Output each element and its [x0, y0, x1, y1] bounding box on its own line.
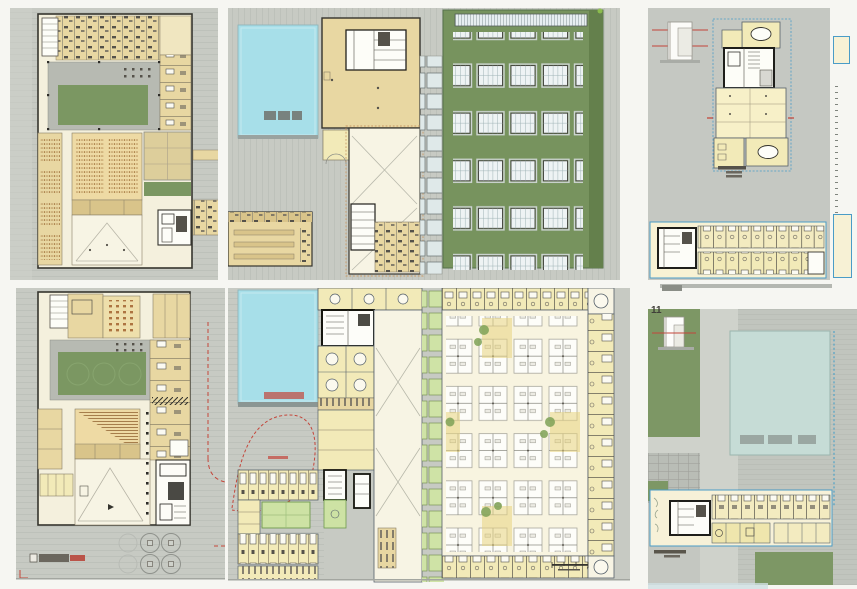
panel-site-plan: 11 — [648, 295, 857, 589]
building-plan — [38, 292, 190, 525]
office-floor — [716, 88, 786, 138]
swimming-pool — [238, 290, 318, 404]
plan-fragment — [833, 214, 852, 278]
sheet-edge-remnant — [660, 284, 832, 288]
vestibule — [323, 130, 349, 160]
scanned-plan-board: 11 — [0, 0, 857, 589]
stair-core — [42, 18, 58, 56]
lower-wing — [228, 212, 312, 266]
open-office-hall — [442, 288, 614, 578]
site-plan-label: 11 — [651, 305, 662, 316]
swimming-pool — [238, 25, 318, 138]
stair-core — [50, 295, 68, 328]
dimension-string — [835, 86, 838, 218]
skylight-grid — [453, 32, 583, 270]
pool-steps — [740, 435, 816, 444]
caption-smudge — [662, 285, 682, 291]
panel-tower-plan — [648, 8, 830, 280]
panel-roof-plan — [228, 8, 620, 280]
multipurpose-hall — [322, 18, 420, 128]
road — [648, 437, 700, 453]
stair-core — [324, 470, 346, 500]
stage — [72, 200, 142, 215]
green-room — [324, 500, 346, 528]
building-plan — [38, 14, 218, 268]
pool-steps — [264, 111, 302, 120]
green-strip — [144, 182, 191, 196]
linear-building-plan — [650, 490, 832, 546]
courtyard-green — [58, 85, 148, 125]
lobby — [75, 459, 150, 525]
scan-artifact-strip — [648, 583, 768, 589]
panel-upper-floor-plan — [10, 8, 218, 280]
pool-label-smudge — [264, 392, 304, 399]
courtyard-green — [58, 352, 146, 395]
bath-fixture — [751, 28, 771, 41]
round-table — [594, 294, 608, 308]
bath-fixture — [758, 146, 778, 159]
ramp-hatch — [152, 397, 188, 405]
page-edge-fragments — [833, 8, 857, 280]
linear-wing-plan — [650, 222, 826, 278]
planter-strip — [422, 288, 444, 582]
stair-core — [351, 204, 375, 250]
lawn — [755, 552, 833, 585]
panel-ground-floor-plan — [10, 288, 225, 584]
linear-skylight — [455, 14, 587, 26]
plan-fragment — [833, 36, 850, 64]
stage — [75, 444, 140, 459]
panel-ground-plan-detailed — [228, 288, 630, 584]
green-roof — [443, 9, 603, 271]
skylight-strip — [420, 56, 442, 274]
